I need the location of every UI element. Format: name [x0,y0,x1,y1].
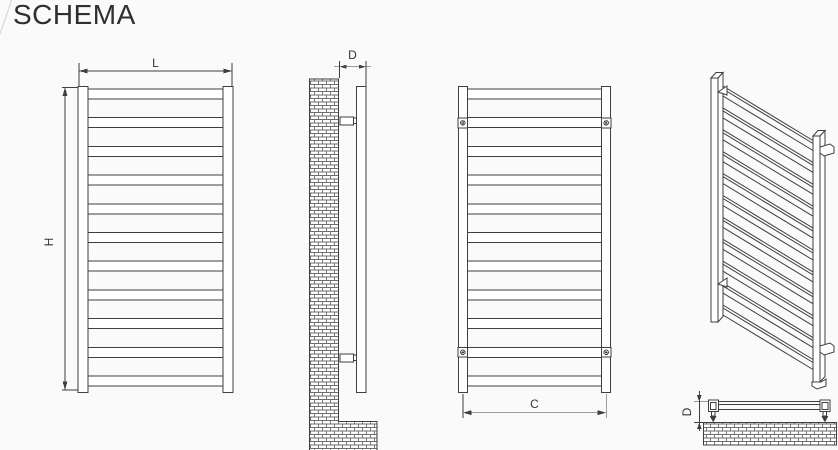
dimension-width: L [79,56,232,87]
collector-left [78,86,88,392]
front-tubes [88,89,223,386]
tube [88,118,223,128]
collector-right [223,86,233,392]
bracket-left [710,412,717,423]
brick-wall-band [703,423,836,446]
tube [467,290,601,300]
dimension-depth-label: D [348,48,357,62]
tube [88,204,223,214]
iso-tubes [718,83,813,370]
radiator-profile [357,87,366,393]
collector-right-3d [813,136,820,382]
wall-bracket-top [340,117,357,125]
tube [88,175,223,185]
dimension-height-label: H [42,238,56,247]
dimension-connections-label: C [530,397,539,411]
collector-left [458,86,467,392]
front-view: L H [42,56,233,392]
bracket-right [822,412,829,423]
rear-tubes [467,89,601,386]
isometric-view [711,73,834,390]
tube [467,261,601,271]
top-mount-detail: D [680,391,837,445]
tube [467,175,601,185]
brick-wall [310,79,378,450]
rear-view: C [458,86,611,418]
dimension-depth-detail-label: D [680,407,694,416]
tube [88,146,223,156]
tube [467,376,601,386]
tube [88,290,223,300]
tube [467,233,601,243]
dimension-connections: C [463,394,606,418]
dimension-height: H [42,87,78,390]
corner-logo-fragment [0,0,12,34]
tube [467,146,601,156]
tube [88,233,223,243]
schema-page: SCHEMA L H [0,0,838,450]
tube [467,347,601,357]
tube [467,118,601,128]
tube [88,376,223,386]
tube [467,319,601,329]
tube [88,89,223,99]
dimension-width-label: L [152,56,159,70]
schema-diagram: L H D [0,0,838,450]
tube [88,261,223,271]
dimension-depth: D [334,48,371,86]
tube [88,347,223,357]
wall-bracket-bottom [340,354,357,362]
tube-top-view [718,402,820,410]
tube [88,319,223,329]
collector-left-3d [711,78,718,322]
tube [467,204,601,214]
collector-right [602,86,611,392]
tube [467,89,601,99]
side-view: D [310,48,378,450]
